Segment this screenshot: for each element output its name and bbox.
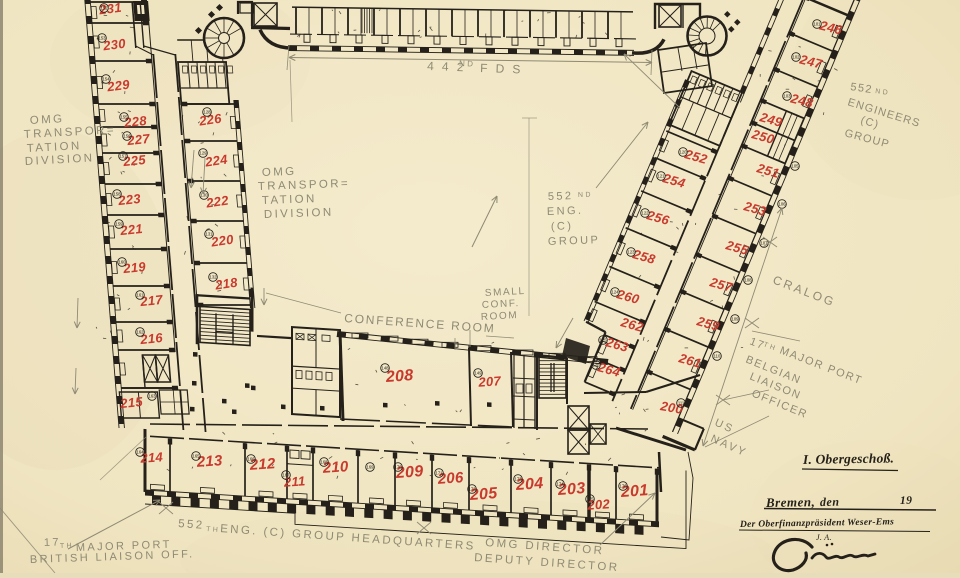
svg-text:552: 552 xyxy=(548,190,574,203)
svg-text:171: 171 xyxy=(436,471,444,476)
svg-text:101: 101 xyxy=(814,22,822,27)
svg-text:102: 102 xyxy=(793,55,801,60)
svg-text:552: 552 xyxy=(178,518,205,532)
svg-text:174: 174 xyxy=(557,482,565,487)
svg-text:121: 121 xyxy=(658,174,666,179)
svg-text:175: 175 xyxy=(587,497,595,502)
svg-text:129: 129 xyxy=(200,151,208,156)
svg-text:165: 165 xyxy=(193,454,201,459)
svg-text:167: 167 xyxy=(283,473,291,478)
svg-text:120: 120 xyxy=(680,150,688,155)
svg-text:130: 130 xyxy=(201,193,209,198)
svg-text:SMALL: SMALL xyxy=(485,286,526,299)
svg-text:162: 162 xyxy=(137,330,145,335)
svg-text:163: 163 xyxy=(149,394,157,399)
svg-text:108: 108 xyxy=(745,278,753,283)
svg-text:132: 132 xyxy=(210,275,218,280)
svg-text:TH: TH xyxy=(206,526,221,534)
svg-text:215: 215 xyxy=(119,394,144,411)
svg-text:148: 148 xyxy=(382,366,390,371)
svg-text:159: 159 xyxy=(116,222,124,227)
svg-text:J. A.: J. A. xyxy=(816,533,832,542)
svg-text:170: 170 xyxy=(395,465,403,470)
svg-text:19: 19 xyxy=(900,495,913,507)
svg-text:(C): (C) xyxy=(551,220,574,233)
svg-text:161: 161 xyxy=(137,293,145,298)
svg-text:168: 168 xyxy=(321,460,329,465)
svg-text:166: 166 xyxy=(248,457,256,462)
svg-text:105: 105 xyxy=(792,164,800,169)
svg-text:I. Obergeschoß.: I. Obergeschoß. xyxy=(802,450,894,467)
svg-text:ND: ND xyxy=(578,191,593,199)
svg-text:157: 157 xyxy=(120,154,128,159)
svg-text:107: 107 xyxy=(761,241,769,246)
svg-text:153: 153 xyxy=(99,36,107,41)
svg-text:109: 109 xyxy=(732,317,740,322)
svg-text:DIVISION: DIVISION xyxy=(264,207,334,221)
svg-text:TATION: TATION xyxy=(262,193,317,207)
svg-text:154: 154 xyxy=(103,77,111,82)
svg-text:106: 106 xyxy=(779,202,787,207)
svg-text:TH: TH xyxy=(60,543,74,550)
svg-text:111: 111 xyxy=(678,401,685,406)
svg-text:ROOM: ROOM xyxy=(481,310,519,323)
svg-text:125: 125 xyxy=(600,338,608,343)
svg-text:GROUP: GROUP xyxy=(548,234,601,248)
svg-text:OMG: OMG xyxy=(30,113,65,127)
svg-text:Bremen,: Bremen, xyxy=(765,494,816,510)
svg-text:122: 122 xyxy=(642,211,650,216)
svg-text:158: 158 xyxy=(114,192,122,197)
svg-text:149: 149 xyxy=(475,371,483,376)
svg-text:124: 124 xyxy=(612,290,620,295)
svg-text:155: 155 xyxy=(121,115,129,120)
svg-text:17: 17 xyxy=(44,536,61,549)
svg-text:F D S: F D S xyxy=(480,61,523,76)
svg-text:103: 103 xyxy=(784,94,792,99)
svg-text:den: den xyxy=(820,495,840,509)
svg-text:172: 172 xyxy=(469,487,477,492)
svg-text:160: 160 xyxy=(119,260,127,265)
svg-text:131: 131 xyxy=(206,232,214,237)
svg-text:OMG: OMG xyxy=(262,166,297,179)
svg-text:156: 156 xyxy=(124,134,132,139)
svg-text:176: 176 xyxy=(620,484,628,489)
svg-text:CONF.: CONF. xyxy=(482,298,521,311)
svg-text:207: 207 xyxy=(477,373,502,390)
svg-text:ENG.: ENG. xyxy=(547,205,584,218)
svg-text:110: 110 xyxy=(714,354,721,359)
svg-text:126: 126 xyxy=(593,363,601,368)
svg-text:123: 123 xyxy=(628,250,636,255)
svg-text:169: 169 xyxy=(367,465,375,470)
svg-text:128: 128 xyxy=(204,110,212,115)
svg-text:173: 173 xyxy=(515,477,523,482)
svg-text:164: 164 xyxy=(137,450,145,455)
svg-text:152: 152 xyxy=(101,6,109,11)
